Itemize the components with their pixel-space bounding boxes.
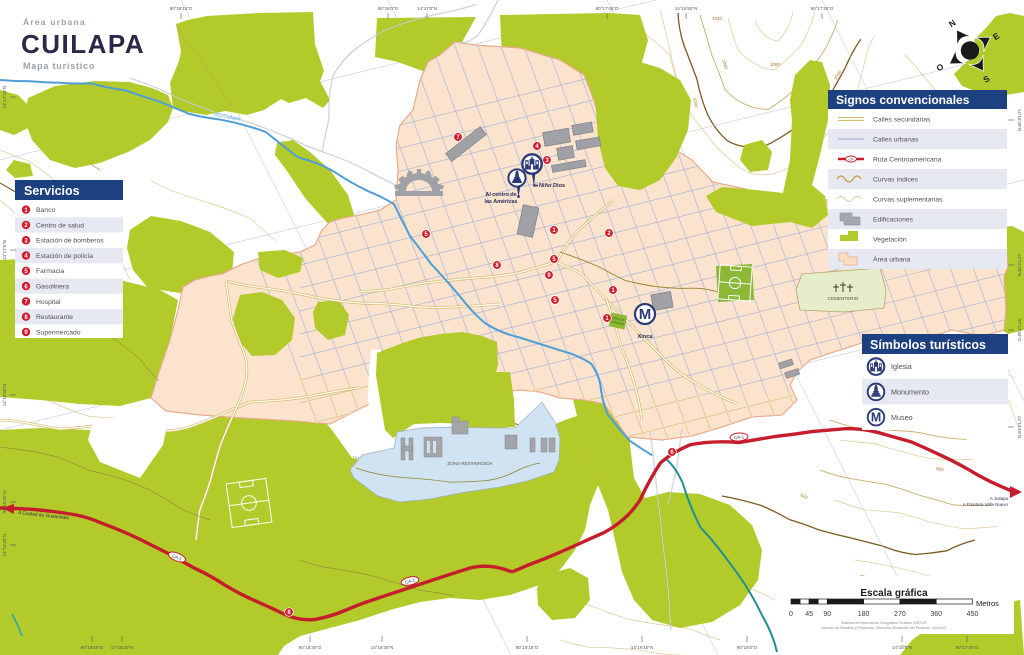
svg-text:450: 450: [967, 611, 979, 618]
svg-text:14°16′50″N: 14°16′50″N: [675, 6, 698, 11]
svg-text:Al centro de: Al centro de: [485, 192, 516, 198]
svg-text:1080: 1080: [770, 62, 781, 67]
svg-text:14°17′5″N: 14°17′5″N: [2, 240, 7, 260]
svg-text:0: 0: [789, 611, 793, 618]
svg-text:90°18′0″O: 90°18′0″O: [378, 6, 399, 11]
svg-text:14°16′5″N: 14°16′5″N: [892, 645, 912, 650]
svg-text:ZONA RESTRINGIDA: ZONA RESTRINGIDA: [447, 461, 493, 466]
svg-text:Escala gráfica: Escala gráfica: [860, 588, 928, 599]
svg-text:90°18′0″O: 90°18′0″O: [737, 645, 758, 650]
svg-text:Símbolos turísticos: Símbolos turísticos: [870, 338, 986, 352]
svg-text:90°18′15″O: 90°18′15″O: [170, 6, 193, 11]
svg-text:CUILAPA: CUILAPA: [21, 29, 145, 59]
svg-text:90°17′30″O: 90°17′30″O: [1017, 319, 1022, 342]
svg-text:Centro de salud: Centro de salud: [36, 222, 84, 229]
svg-text:Calles urbanas: Calles urbanas: [873, 137, 919, 144]
svg-text:1040: 1040: [712, 16, 723, 21]
svg-text:Edificaciones: Edificaciones: [873, 217, 914, 224]
svg-text:14°17′0″N: 14°17′0″N: [417, 6, 437, 11]
svg-text:A Jutiapa: A Jutiapa: [990, 496, 1009, 501]
svg-text:90°18′30″O: 90°18′30″O: [299, 645, 322, 650]
svg-text:Sección de Estudios y Proyecto: Sección de Estudios y Proyectos / Direcc…: [821, 626, 947, 630]
svg-text:CA: CA: [849, 158, 855, 162]
svg-text:M: M: [639, 306, 652, 323]
svg-text:90°18′45″O: 90°18′45″O: [81, 645, 104, 650]
svg-text:Gasolinera: Gasolinera: [36, 284, 69, 291]
svg-text:Metros: Metros: [976, 599, 999, 608]
svg-text:Estación de policía: Estación de policía: [36, 253, 93, 260]
svg-text:Niño Dios: Niño Dios: [539, 183, 565, 189]
svg-text:Banco: Banco: [36, 207, 55, 214]
svg-text:90°17′45″O: 90°17′45″O: [956, 645, 979, 650]
svg-text:14°16′10″N: 14°16′10″N: [631, 645, 654, 650]
svg-text:14°16′30″N: 14°16′30″N: [1017, 109, 1022, 132]
svg-text:Xinca: Xinca: [638, 334, 654, 340]
svg-text:Estación de bomberos: Estación de bomberos: [36, 238, 104, 245]
svg-text:Mapa turístico: Mapa turístico: [23, 61, 95, 71]
svg-text:M: M: [871, 411, 881, 425]
svg-text:90°17′45″O: 90°17′45″O: [596, 6, 619, 11]
svg-text:Vegetación: Vegetación: [873, 237, 907, 244]
svg-text:Área urbana: Área urbana: [23, 17, 86, 27]
svg-text:180: 180: [858, 611, 870, 618]
svg-text:90°18′15″O: 90°18′15″O: [516, 645, 539, 650]
svg-text:14°16′50″N: 14°16′50″N: [2, 384, 7, 407]
svg-text:14°16′20″N: 14°16′20″N: [1017, 254, 1022, 277]
svg-text:90: 90: [823, 611, 831, 618]
svg-text:90°18′45″O: 90°18′45″O: [2, 490, 7, 513]
svg-text:360: 360: [930, 611, 942, 618]
svg-text:Restaurante: Restaurante: [36, 314, 73, 321]
svg-text:Área urbana: Área urbana: [873, 255, 911, 264]
svg-text:Farmacia: Farmacia: [36, 268, 65, 275]
svg-text:Supermercado: Supermercado: [36, 329, 81, 336]
svg-text:Sistema de Información Geográf: Sistema de Información Geográfica Turíst…: [841, 621, 927, 625]
svg-text:14°16′30″N: 14°16′30″N: [371, 645, 394, 650]
svg-text:Servicios: Servicios: [24, 184, 80, 198]
svg-text:Calles secundarias: Calles secundarias: [873, 117, 931, 124]
svg-text:CEMENTERIO: CEMENTERIO: [828, 296, 859, 301]
svg-text:Curvas suplementarias: Curvas suplementarias: [873, 197, 943, 204]
svg-text:Signos convencionales: Signos convencionales: [836, 93, 970, 107]
svg-text:14°16′10″N: 14°16′10″N: [1017, 416, 1022, 439]
svg-text:las Américas: las Américas: [484, 199, 517, 205]
svg-text:14°17′10″N: 14°17′10″N: [2, 86, 7, 109]
svg-text:Museo: Museo: [891, 413, 913, 422]
svg-text:Hospital: Hospital: [36, 299, 61, 306]
svg-text:CA-1: CA-1: [734, 435, 745, 441]
svg-text:14°16′30″N: 14°16′30″N: [111, 645, 134, 650]
svg-text:Curvas índices: Curvas índices: [873, 177, 919, 184]
svg-text:Ruta Centroamericana: Ruta Centroamericana: [873, 157, 942, 164]
svg-text:Iglesia: Iglesia: [891, 362, 912, 371]
svg-text:A Frontera Valle Nuevo: A Frontera Valle Nuevo: [963, 502, 1009, 507]
svg-text:Monumento: Monumento: [891, 388, 929, 397]
svg-text:45: 45: [805, 611, 813, 618]
svg-text:90°17′30″O: 90°17′30″O: [811, 6, 834, 11]
svg-text:270: 270: [894, 611, 906, 618]
svg-text:14°16′45″N: 14°16′45″N: [2, 534, 7, 557]
